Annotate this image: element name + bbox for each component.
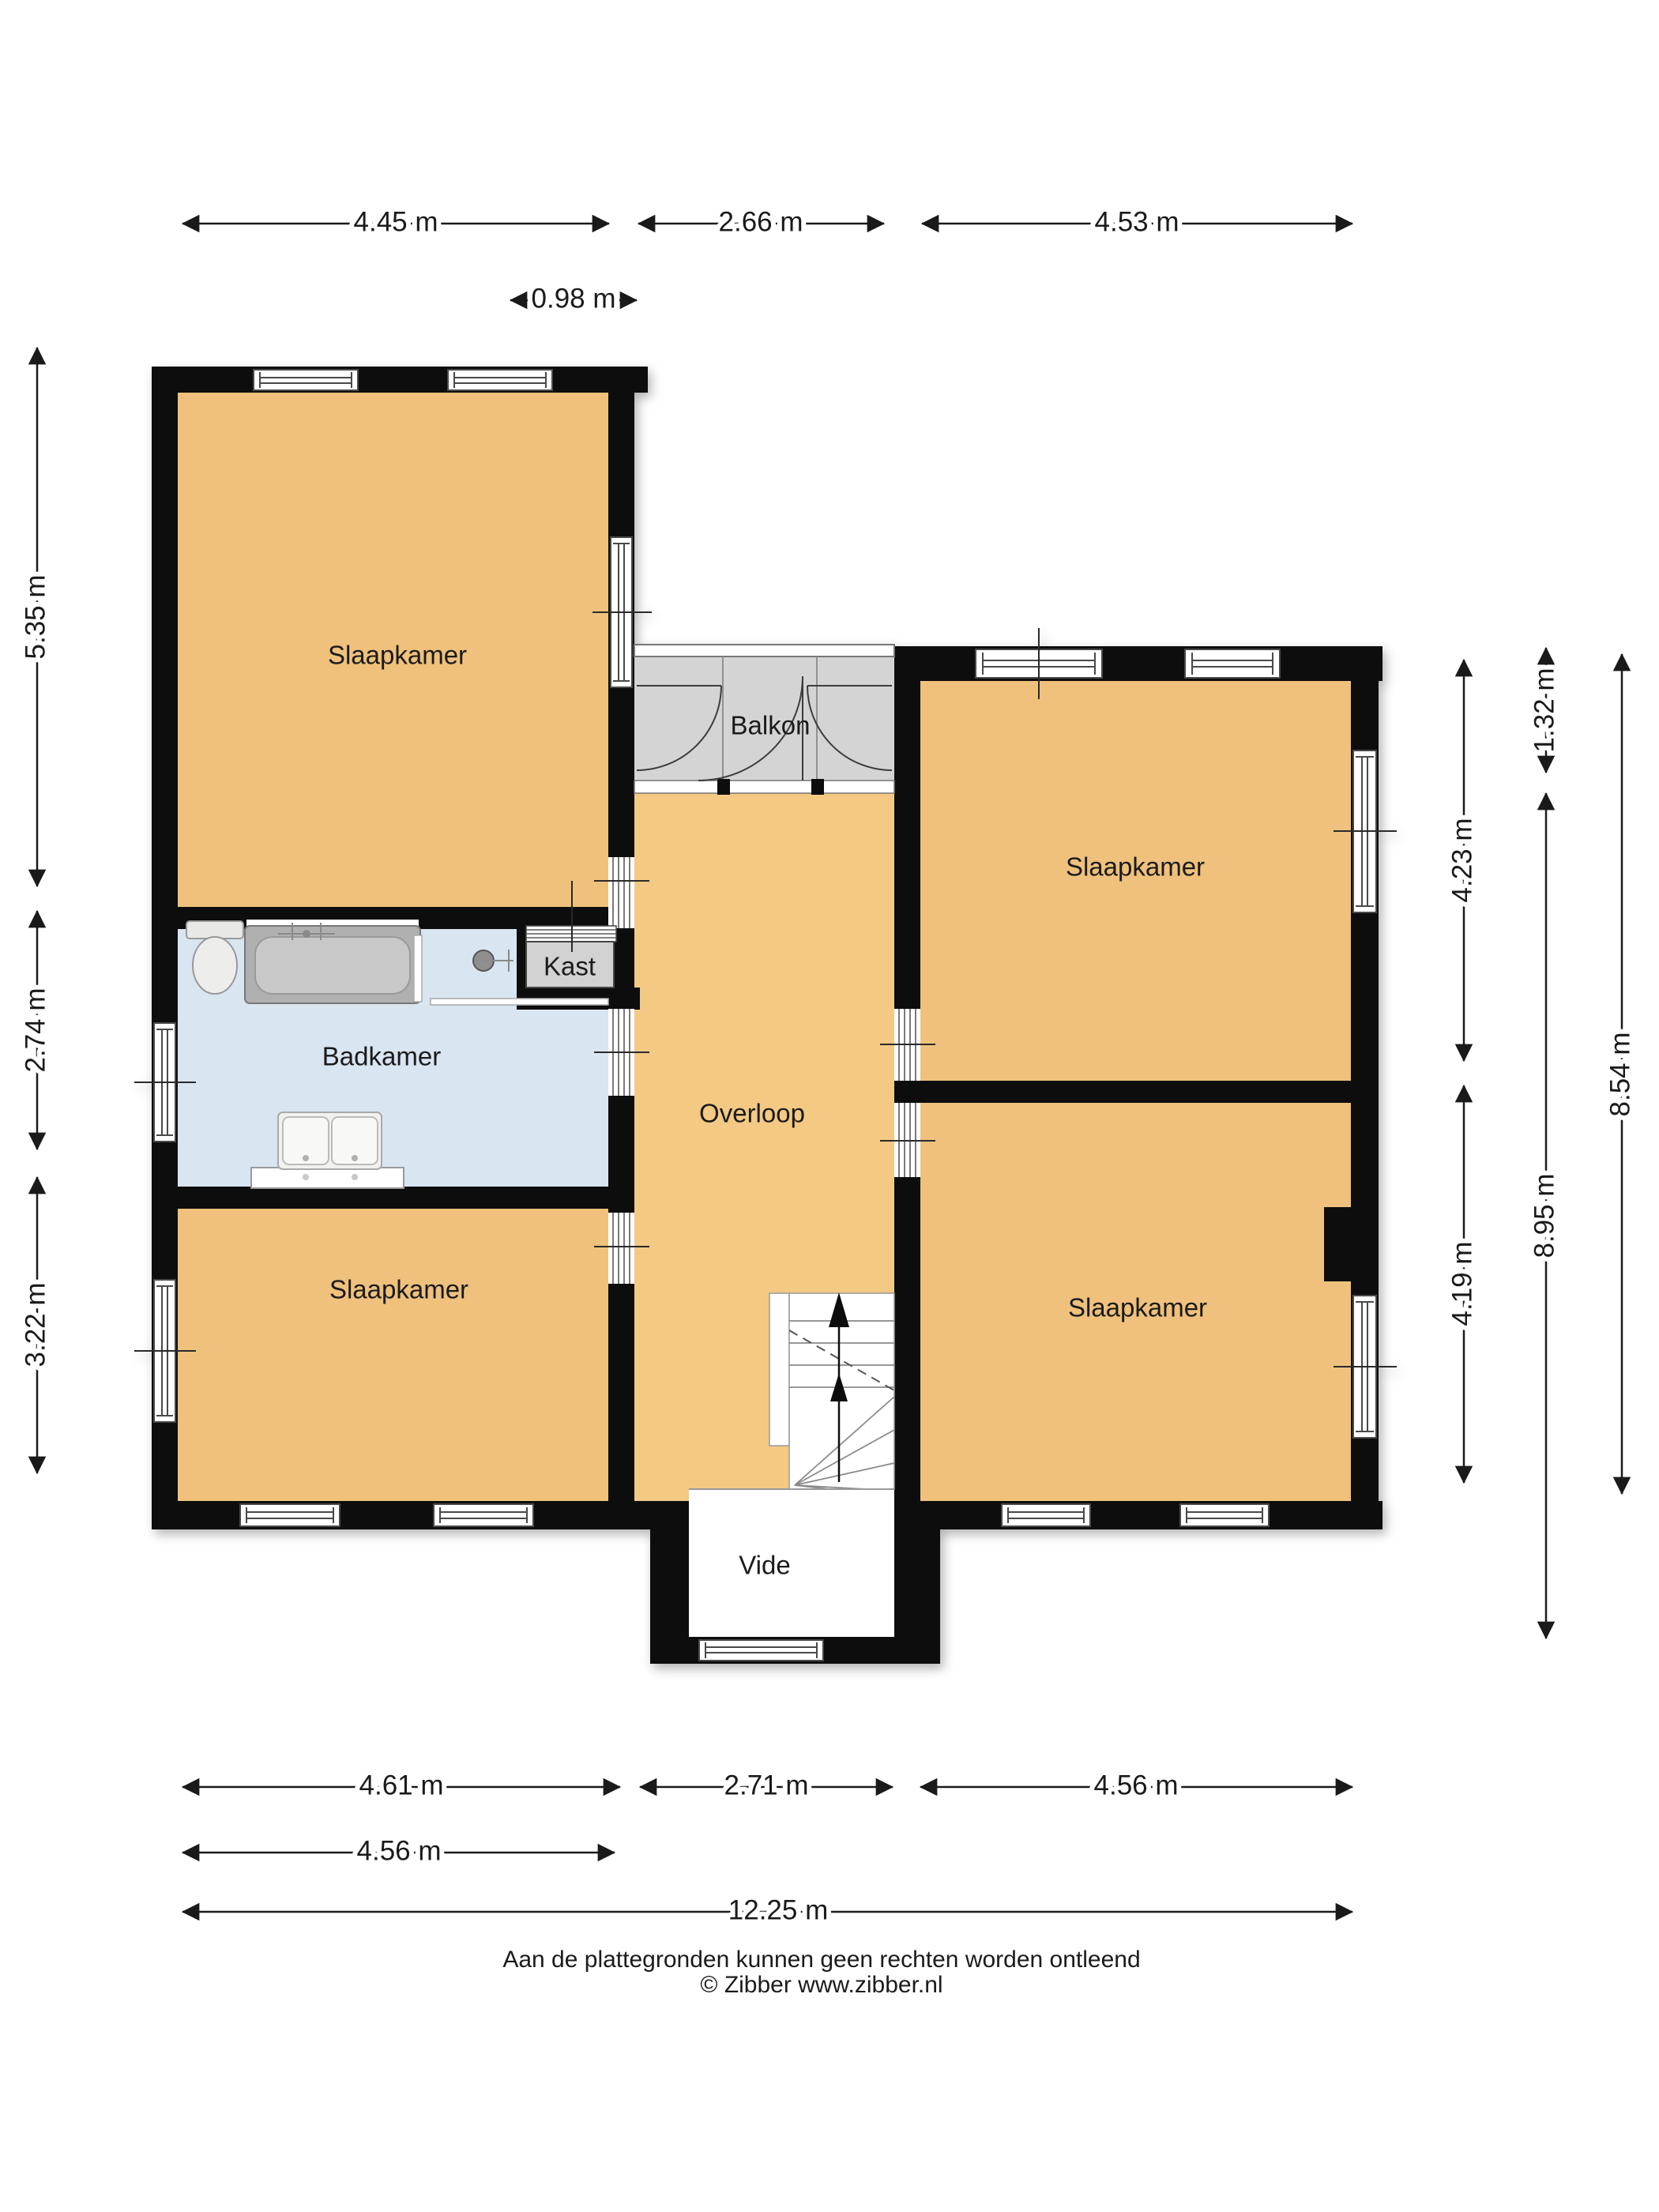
dim-bottom-middle: 2.71 m: [640, 1770, 893, 1800]
svg-text:4.23 m: 4.23 m: [1446, 818, 1477, 903]
room-vide: [689, 1489, 894, 1637]
floors: [178, 393, 1351, 1637]
bathtub-icon: [245, 920, 420, 1003]
label-balkon: Balkon: [731, 711, 811, 740]
window-top-left-1: [254, 370, 358, 390]
svg-text:4.19 m: 4.19 m: [1446, 1242, 1477, 1326]
dim-left-middle: 2.74 m: [20, 911, 51, 1149]
label-slaapkamer-top-left: Slaapkamer: [328, 641, 467, 670]
svg-text:8.95 m: 8.95 m: [1529, 1174, 1559, 1258]
label-vide: Vide: [739, 1551, 790, 1580]
window-bottom-right-2: [1180, 1504, 1269, 1526]
svg-text:4.53 m: 4.53 m: [1095, 206, 1179, 237]
footer-disclaimer: Aan de plattegronden kunnen geen rechten…: [502, 1947, 1140, 1973]
dim-right-room-top: 4.23 m: [1446, 660, 1477, 1061]
label-kast: Kast: [544, 952, 596, 981]
dim-bottom-right: 4.56 m: [920, 1770, 1352, 1800]
dim-right-balcony-depth: 1.32 m: [1529, 648, 1559, 773]
dim-top-middle: 2.66 m: [638, 206, 884, 237]
dim-top-right: 4.53 m: [922, 206, 1352, 237]
svg-text:4.45 m: 4.45 m: [354, 206, 438, 237]
window-top-left-2: [448, 370, 552, 390]
svg-text:2.74 m: 2.74 m: [20, 988, 51, 1073]
dim-right-inner-total: 8.95 m: [1529, 793, 1559, 1638]
chimney-ledge: [1324, 1207, 1351, 1281]
footer-copyright: © Zibber www.zibber.nl: [700, 1972, 942, 1998]
dim-bottom-left: 4.61 m: [182, 1770, 620, 1800]
svg-text:4.56 m: 4.56 m: [1094, 1770, 1179, 1800]
svg-text:2.71 m: 2.71 m: [724, 1770, 809, 1800]
svg-text:8.54 m: 8.54 m: [1604, 1033, 1635, 1117]
svg-text:5.35 m: 5.35 m: [20, 575, 51, 660]
dim-balcony-inner: 0.98 m: [510, 283, 637, 314]
balcony-sill: [634, 781, 894, 793]
floorplan: [134, 367, 1397, 1664]
svg-text:0.98 m: 0.98 m: [532, 283, 616, 314]
window-top-right-2: [1185, 649, 1280, 678]
window-vide-bottom: [699, 1640, 823, 1661]
dim-right-outer-total: 8.54 m: [1604, 654, 1635, 1494]
label-slaapkamer-bottom-right: Slaapkamer: [1068, 1293, 1207, 1322]
svg-text:12.25 m: 12.25 m: [728, 1894, 828, 1925]
svg-text:1.32 m: 1.32 m: [1529, 668, 1559, 753]
dim-left-bottom: 3.22 m: [20, 1177, 51, 1473]
dim-bottom-total: 12.25 m: [182, 1894, 1352, 1925]
window-bottom-right-1: [1002, 1504, 1090, 1526]
balcony-railing: [634, 645, 894, 656]
dim-bottom-left-row2: 4.56 m: [182, 1835, 615, 1866]
dim-left-top: 5.35 m: [20, 348, 51, 886]
label-badkamer: Badkamer: [322, 1042, 441, 1071]
svg-text:4.56 m: 4.56 m: [357, 1835, 442, 1866]
label-slaapkamer-top-right: Slaapkamer: [1066, 852, 1205, 882]
room-slaapkamer-bottom-left: [178, 1209, 608, 1501]
label-overloop: Overloop: [699, 1099, 805, 1128]
dim-top-left: 4.45 m: [182, 206, 609, 237]
window-bottom-left-2: [434, 1504, 533, 1526]
footer: Aan de plattegronden kunnen geen rechten…: [502, 1947, 1140, 1998]
floorplan-canvas: Slaapkamer Slaapkamer Badkamer Kast Balk…: [0, 0, 1659, 2212]
svg-text:2.66 m: 2.66 m: [719, 206, 803, 237]
svg-text:3.22 m: 3.22 m: [20, 1283, 51, 1367]
window-bottom-left-1: [240, 1504, 340, 1526]
svg-text:4.61 m: 4.61 m: [359, 1770, 444, 1800]
dim-right-room-bottom: 4.19 m: [1446, 1085, 1477, 1483]
label-slaapkamer-bottom-left: Slaapkamer: [329, 1275, 468, 1304]
